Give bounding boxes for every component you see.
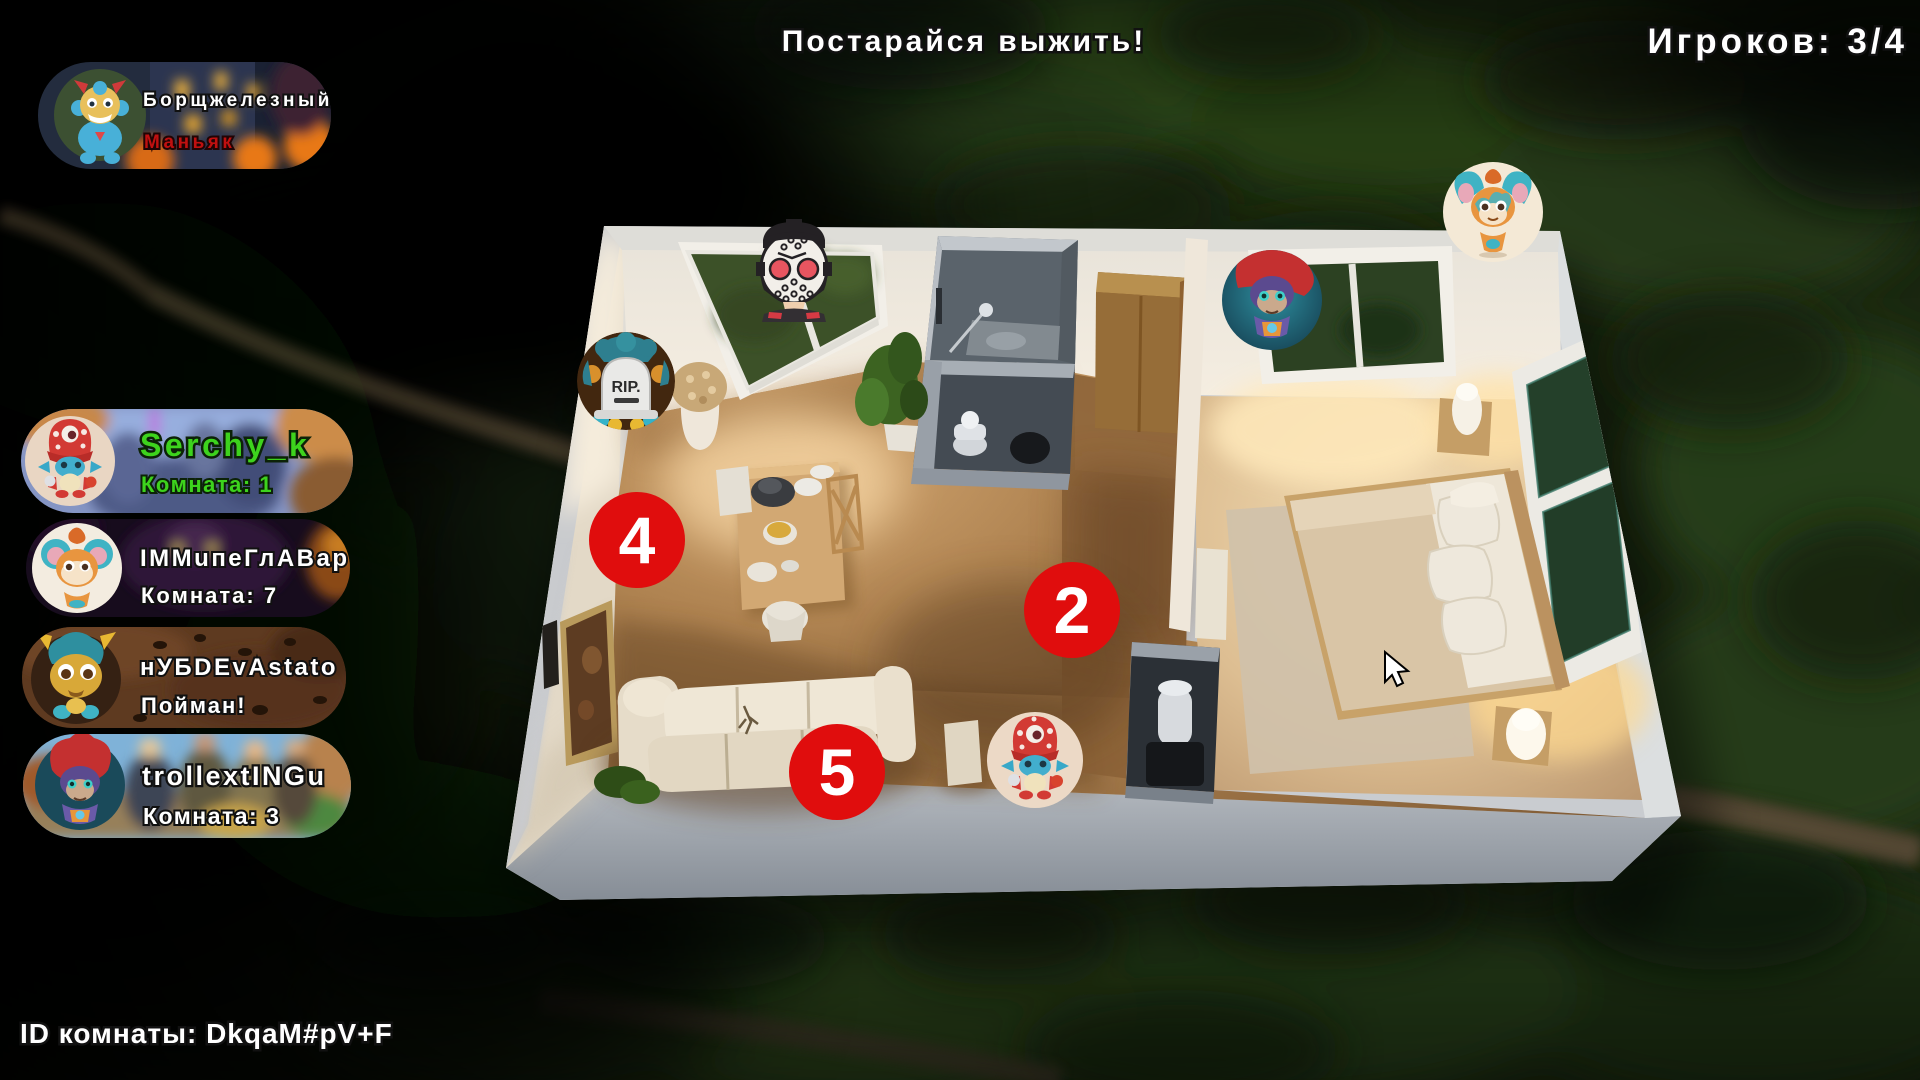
svg-text:Постарайся выжить!: Постарайся выжить!	[782, 25, 1146, 58]
svg-text:Комната: 7: Комната: 7	[141, 583, 278, 608]
svg-text:RIP.: RIP.	[611, 379, 640, 396]
svg-text:IMMuпеГлАВар: IMMuпеГлАВар	[140, 545, 349, 572]
svg-text:4: 4	[619, 503, 656, 577]
svg-text:Игроков: 3/4: Игроков: 3/4	[1648, 22, 1908, 61]
svg-text:trollextINGu: trollextINGu	[142, 761, 327, 791]
svg-text:ID комнаты: DkqaM#pV+F: ID комнаты: DkqaM#pV+F	[20, 1018, 393, 1049]
svg-text:Serchy_k: Serchy_k	[140, 427, 310, 463]
svg-text:Пойман!: Пойман!	[141, 693, 247, 718]
svg-text:Борщжелезный: Борщжелезный	[143, 90, 333, 111]
svg-text:2: 2	[1054, 573, 1091, 647]
svg-text:5: 5	[819, 735, 856, 809]
svg-text:Комната: 1: Комната: 1	[141, 472, 273, 497]
svg-text:Маньяк: Маньяк	[144, 132, 235, 153]
svg-text:нУБDEvAstato: нУБDEvAstato	[140, 654, 338, 681]
svg-text:Комната: 3: Комната: 3	[143, 803, 280, 829]
